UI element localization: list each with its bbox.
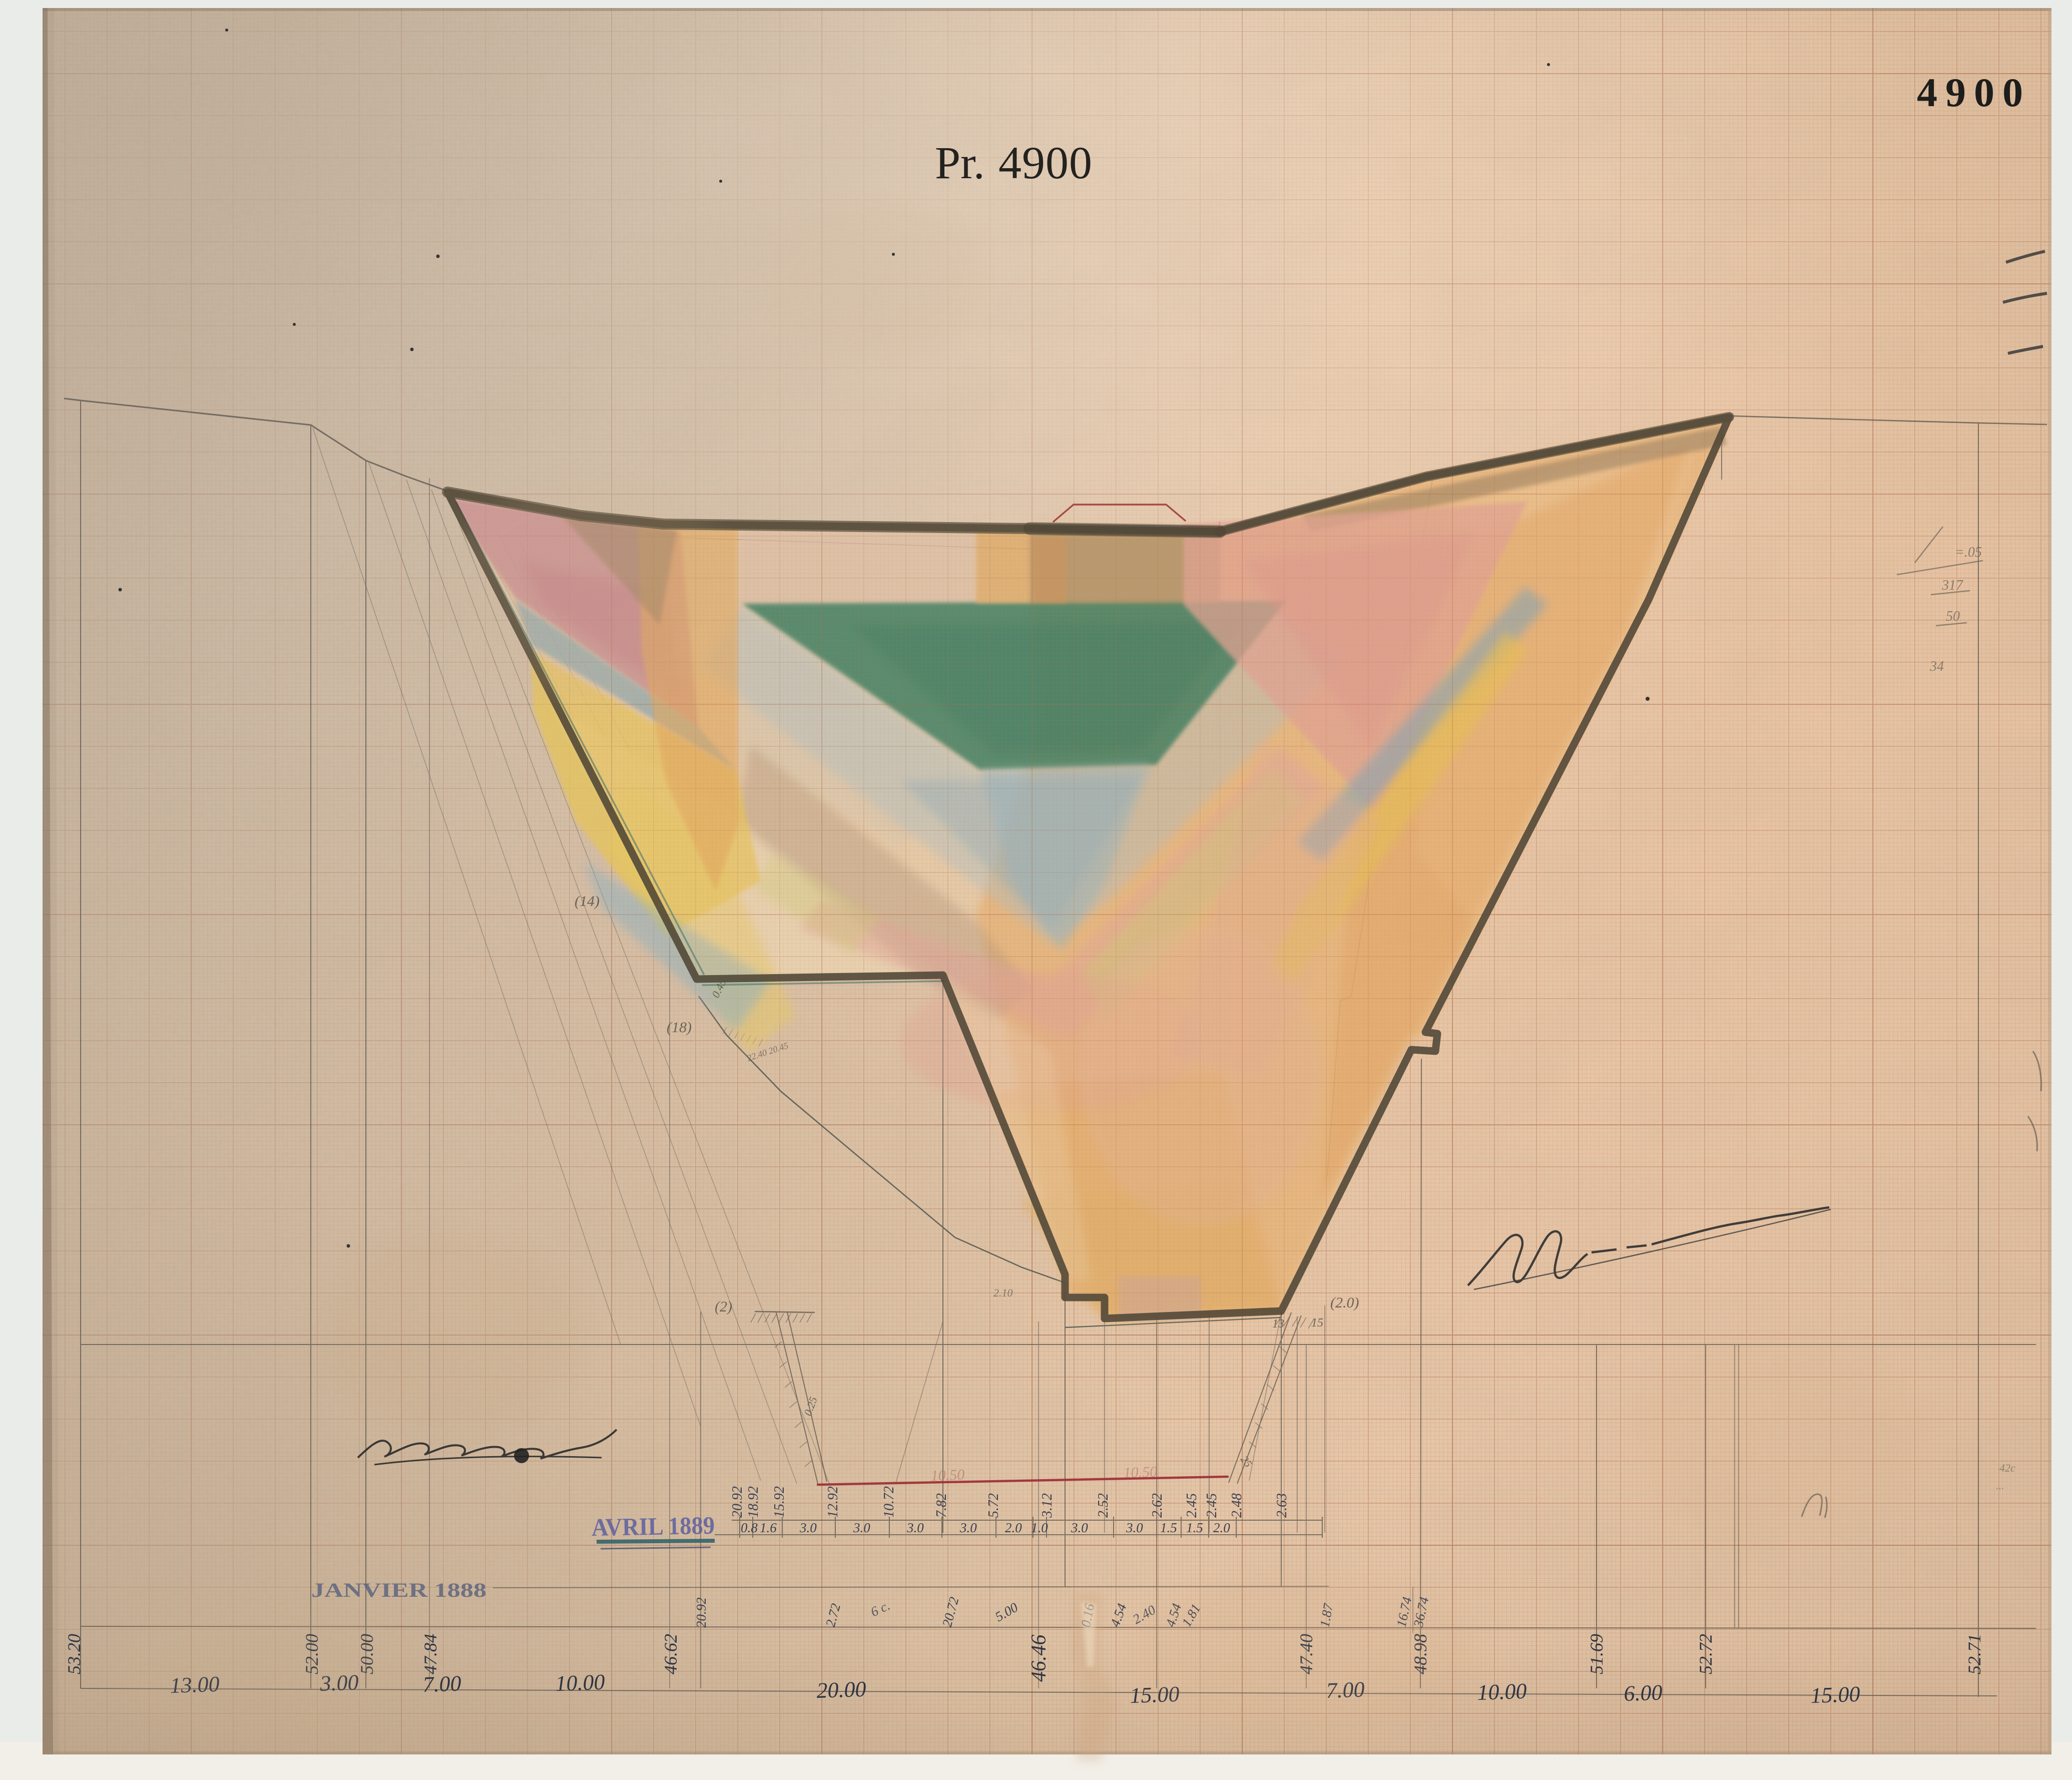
svg-text:317: 317	[1941, 578, 1963, 593]
svg-text:(14): (14)	[575, 893, 600, 910]
svg-text:2.45: 2.45	[1204, 1493, 1220, 1518]
svg-text:4900: 4900	[998, 137, 1093, 188]
svg-text:6.00: 6.00	[1624, 1680, 1663, 1706]
svg-text:53.20: 53.20	[64, 1634, 84, 1674]
svg-text:15.92: 15.92	[772, 1486, 787, 1518]
svg-text:46.62: 46.62	[661, 1634, 681, 1674]
svg-text:4900: 4900	[1917, 70, 2031, 115]
svg-text:18.92: 18.92	[746, 1486, 761, 1518]
svg-text:47.84: 47.84	[420, 1634, 440, 1674]
svg-text:15.00: 15.00	[1810, 1682, 1861, 1708]
svg-text:(2): (2)	[715, 1298, 732, 1315]
svg-text:5.72: 5.72	[986, 1493, 1001, 1518]
svg-text:34: 34	[1929, 659, 1944, 674]
svg-text:1.5: 1.5	[1160, 1520, 1177, 1535]
svg-text:10.50: 10.50	[930, 1467, 965, 1484]
svg-text:2.52: 2.52	[1096, 1493, 1111, 1518]
svg-text:20.92: 20.92	[694, 1597, 709, 1628]
svg-text:10.72: 10.72	[881, 1486, 897, 1518]
svg-text:2.0: 2.0	[1213, 1520, 1230, 1535]
svg-text:2.10: 2.10	[993, 1286, 1013, 1299]
svg-text:15: 15	[1311, 1316, 1323, 1329]
svg-text:0.8: 0.8	[741, 1520, 758, 1535]
svg-text:3.0: 3.0	[799, 1520, 817, 1535]
svg-text:20.92: 20.92	[730, 1486, 745, 1518]
svg-text:1.5: 1.5	[1186, 1520, 1203, 1535]
svg-text:3.0: 3.0	[1071, 1520, 1088, 1535]
svg-text:(2.0): (2.0)	[1330, 1294, 1359, 1311]
svg-text:2.63: 2.63	[1274, 1493, 1290, 1518]
svg-text:10.00: 10.00	[555, 1670, 606, 1696]
svg-text:1.6: 1.6	[760, 1520, 777, 1535]
svg-text:3.0: 3.0	[959, 1520, 977, 1535]
svg-text:2.62: 2.62	[1150, 1493, 1165, 1518]
svg-text:3.0: 3.0	[853, 1520, 870, 1535]
svg-text:46.46: 46.46	[1027, 1635, 1051, 1682]
svg-text:51.69: 51.69	[1587, 1634, 1607, 1674]
svg-text:20.00: 20.00	[816, 1677, 867, 1703]
svg-text:2.48: 2.48	[1229, 1493, 1245, 1518]
svg-text:3.12: 3.12	[1040, 1493, 1055, 1518]
svg-text:2.45: 2.45	[1184, 1493, 1200, 1518]
svg-text:1.0: 1.0	[1031, 1520, 1048, 1535]
svg-text:7.00: 7.00	[422, 1671, 462, 1697]
svg-text:(18): (18)	[667, 1019, 692, 1036]
svg-text:7.82: 7.82	[934, 1493, 949, 1518]
svg-text:=.05: =.05	[1955, 545, 1982, 560]
svg-text:AVRIL 1889: AVRIL 1889	[592, 1511, 715, 1541]
svg-text:JANVIER 1888: JANVIER 1888	[311, 1579, 486, 1601]
svg-text:10.00: 10.00	[1477, 1679, 1527, 1705]
svg-text:...: ...	[1996, 1479, 2004, 1492]
svg-text:52.72: 52.72	[1696, 1634, 1716, 1674]
svg-text:52.71: 52.71	[1964, 1634, 1984, 1674]
svg-text:42c: 42c	[1999, 1462, 2015, 1474]
svg-text:3.0: 3.0	[1126, 1520, 1143, 1535]
svg-text:50: 50	[1946, 609, 1960, 624]
svg-text:3.0: 3.0	[906, 1520, 924, 1535]
svg-text:2.0: 2.0	[1005, 1520, 1022, 1535]
svg-text:12.92: 12.92	[825, 1486, 841, 1518]
svg-text:13: 13	[1272, 1317, 1284, 1330]
svg-text:Pr.: Pr.	[935, 137, 985, 188]
svg-text:10.50: 10.50	[1123, 1464, 1158, 1481]
